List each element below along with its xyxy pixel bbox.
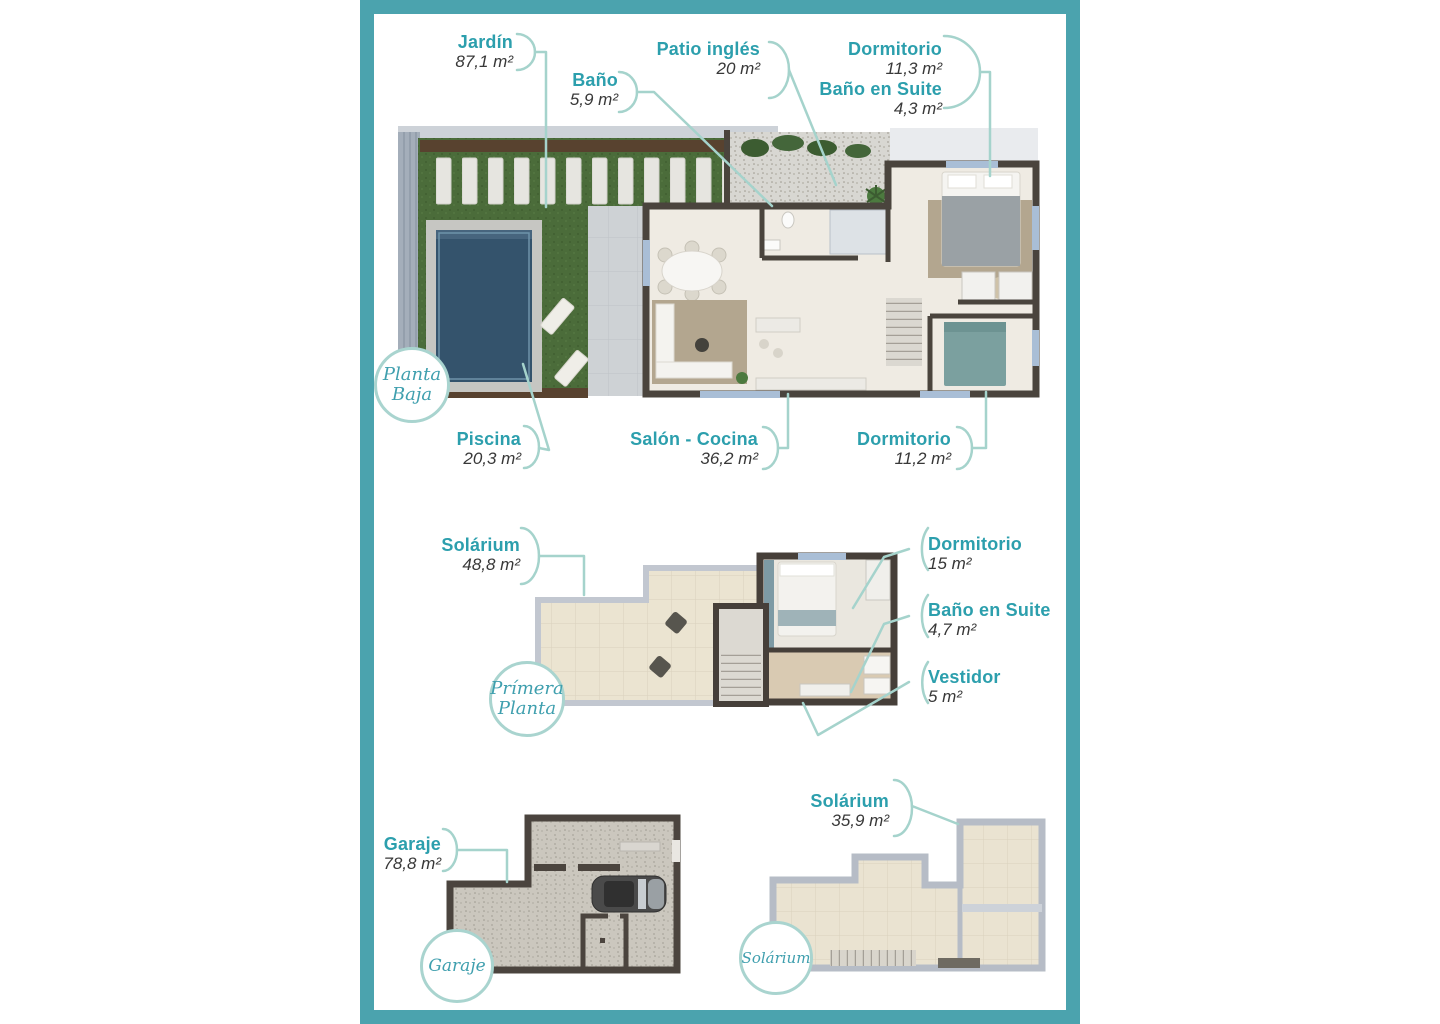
label-dormitorio-113: Dormitorio 11,3 m²	[812, 40, 942, 78]
leader-solarium-488	[539, 556, 584, 595]
room-area: 5 m²	[928, 687, 1068, 706]
garage-door-opening	[672, 840, 680, 862]
garden-top-fence	[398, 126, 778, 138]
arc-solarium-488	[521, 528, 539, 584]
label-solarium-359: Solárium 35,9 m²	[769, 792, 889, 830]
arc-dormitorio-112	[957, 427, 972, 469]
pool-water	[436, 230, 532, 382]
room-name: Baño	[498, 71, 618, 90]
badge-primera-planta: Prímera Planta	[489, 661, 565, 737]
arc-bano	[619, 72, 637, 112]
leader-salon-cocina	[778, 394, 788, 448]
arc-salon-cocina	[763, 427, 778, 469]
room-area: 87,1 m²	[393, 52, 513, 71]
solarium-stairs	[830, 950, 916, 966]
label-bano: Baño 5,9 m²	[498, 71, 618, 109]
arc-garaje	[443, 829, 457, 871]
label-dormitorio-15: Dormitorio 15 m²	[928, 535, 1068, 573]
plan-primera-planta	[538, 553, 896, 704]
label-patio-ingles: Patio inglés 20 m²	[630, 40, 760, 78]
label-vestidor: Vestidor 5 m²	[928, 668, 1068, 706]
badge-line: Solárium	[742, 949, 811, 967]
arc-jardin	[517, 34, 535, 70]
solarium-step-band	[962, 904, 1042, 912]
room-area: 11,3 m²	[812, 59, 942, 78]
garage-shelf	[620, 842, 660, 851]
leader-garaje	[457, 850, 507, 882]
solarium-stub	[938, 958, 980, 968]
room-area: 36,2 m²	[608, 449, 758, 468]
houseplant	[736, 372, 748, 384]
room-name: Salón - Cocina	[608, 430, 758, 449]
badge-line: Prímera	[490, 679, 564, 699]
coffee-table	[695, 338, 709, 352]
garage-wall-stub-2	[578, 864, 620, 871]
stepping-stones	[436, 156, 766, 206]
badge-line: Planta	[498, 699, 556, 719]
label-suite-47: Baño en Suite 4,7 m²	[928, 601, 1078, 639]
room-name: Piscina	[401, 430, 521, 449]
room-name: Dormitorio	[812, 40, 942, 59]
room-name: Baño en Suite	[928, 601, 1078, 620]
upper-bathroom	[766, 652, 892, 700]
badge-garaje: Garaje	[420, 929, 494, 1003]
room-name: Dormitorio	[831, 430, 951, 449]
room-name: Vestidor	[928, 668, 1068, 687]
room-area: 48,8 m²	[400, 555, 520, 574]
room-area: 35,9 m²	[769, 811, 889, 830]
label-piscina: Piscina 20,3 m²	[401, 430, 521, 468]
room-area: 15 m²	[928, 554, 1068, 573]
stairwell-upper	[716, 606, 766, 704]
arc-dormitorio-suite	[944, 36, 980, 108]
room-area: 4,3 m²	[802, 99, 942, 118]
label-suite-43: Baño en Suite 4,3 m²	[802, 80, 942, 118]
courtyard-left-wall	[724, 130, 730, 208]
room-area: 5,9 m²	[498, 90, 618, 109]
label-jardin: Jardín 87,1 m²	[393, 33, 513, 71]
leader-solarium-359	[912, 806, 958, 824]
room-area: 20 m²	[630, 59, 760, 78]
badge-planta-baja: Planta Baja	[374, 347, 450, 423]
leader-dormitorio-112	[972, 392, 986, 448]
room-name: Garaje	[331, 835, 441, 854]
upper-window	[798, 553, 846, 560]
plan-solarium-roof	[773, 822, 1042, 968]
badge-solarium: Solárium	[739, 921, 813, 995]
label-garaje: Garaje 78,8 m²	[331, 835, 441, 873]
room-name: Jardín	[393, 33, 513, 52]
badge-line: Baja	[392, 385, 432, 405]
stairs-ground	[886, 298, 922, 366]
badge-line: Garaje	[428, 957, 485, 976]
room-name: Patio inglés	[630, 40, 760, 59]
hedge-top	[420, 140, 772, 152]
arc-solarium-359	[894, 780, 912, 836]
badge-line: Planta	[383, 365, 441, 385]
label-solarium-488: Solárium 48,8 m²	[400, 536, 520, 574]
room-area: 4,7 m²	[928, 620, 1078, 639]
arc-piscina	[524, 426, 539, 468]
room-area: 78,8 m²	[331, 854, 441, 873]
room-name: Solárium	[400, 536, 520, 555]
garage-wall-stub-1	[534, 864, 566, 871]
plan-planta-baja	[398, 126, 1039, 398]
label-salon-cocina: Salón - Cocina 36,2 m²	[608, 430, 758, 468]
arc-patio-ingles	[769, 42, 789, 98]
room-name: Solárium	[769, 792, 889, 811]
dining-set	[658, 241, 726, 301]
room-area: 20,3 m²	[401, 449, 521, 468]
room-name: Baño en Suite	[802, 80, 942, 99]
room-area: 11,2 m²	[831, 449, 951, 468]
floorplan-artwork	[0, 0, 1440, 1024]
room-name: Dormitorio	[928, 535, 1068, 554]
label-dormitorio-112: Dormitorio 11,2 m²	[831, 430, 951, 468]
bedroom-bottom	[944, 322, 1006, 386]
car	[592, 876, 666, 912]
